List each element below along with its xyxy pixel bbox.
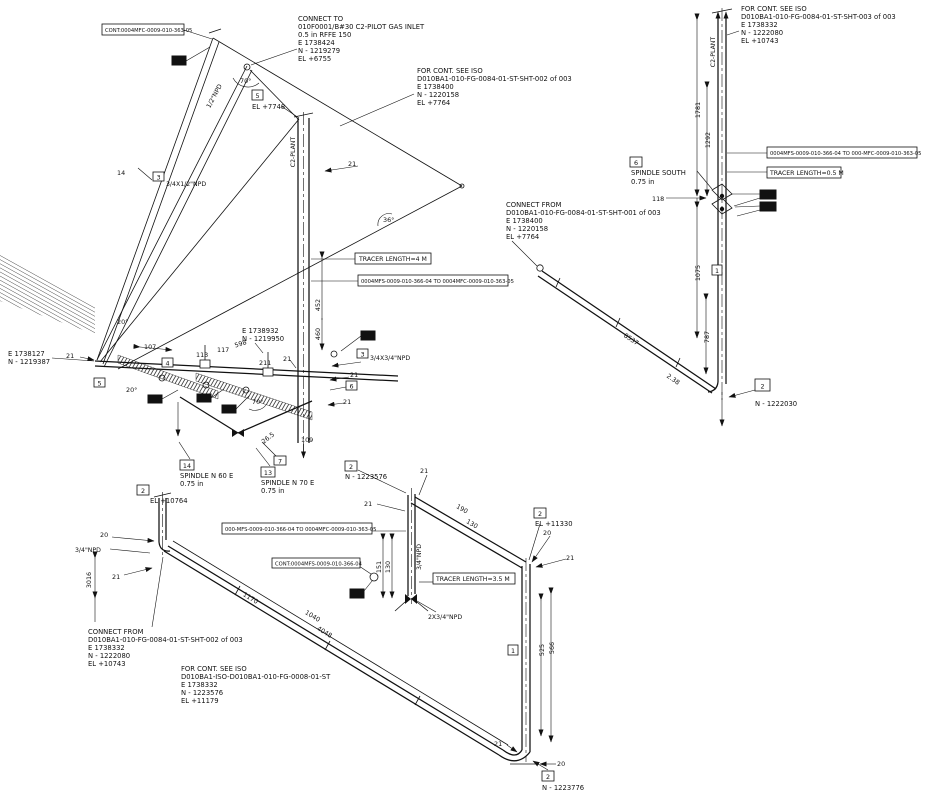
spindle-n60e-l1: SPINDLE N 60 E bbox=[180, 472, 233, 480]
ref-5b-label: 5 bbox=[97, 380, 101, 388]
cf002-line3: E 1738332 bbox=[88, 644, 125, 652]
connect-to-line5: N - 1219279 bbox=[298, 47, 340, 55]
fc002-line4: N - 1220158 bbox=[417, 91, 459, 99]
coord-left-block: E 1738127 N - 1219387 bbox=[8, 350, 50, 366]
dim-21-loop3: 21 bbox=[566, 554, 574, 562]
fciso-line3: E 1738332 bbox=[181, 681, 218, 689]
cf002-line4: N - 1222080 bbox=[88, 652, 130, 660]
paper-background bbox=[0, 0, 927, 796]
cf001-line1: CONNECT FROM bbox=[506, 201, 562, 209]
ref-1b-label: 1 bbox=[511, 647, 515, 655]
dim-21-bl: 21 bbox=[112, 573, 120, 581]
fc003-line3: E 1738332 bbox=[741, 21, 778, 29]
ref-6-label: 6 bbox=[634, 159, 638, 167]
line-name-right: C2-PLANT bbox=[710, 37, 717, 68]
fc002-line1: FOR CONT. SEE ISO bbox=[417, 67, 483, 75]
dim-3016: 3016 bbox=[85, 572, 93, 588]
fc003-line1: FOR CONT. SEE ISO bbox=[741, 5, 807, 13]
ref-2c-label: 2 bbox=[349, 463, 353, 471]
spindle-n70e-l2: 0.75 in bbox=[261, 487, 285, 495]
cf001-line4: N - 1220158 bbox=[506, 225, 548, 233]
coord-mid-block: E 1738932 N - 1219950 bbox=[242, 327, 284, 343]
n-1223576-label: N - 1223576 bbox=[345, 473, 387, 481]
dim-452: 452 bbox=[314, 299, 322, 311]
cf002-line5: EL +10743 bbox=[88, 660, 126, 668]
coord-left-n: N - 1219387 bbox=[8, 358, 50, 366]
npd-34-label: 3/4"NPD bbox=[75, 547, 101, 554]
connect-to-line4: E 1738424 bbox=[298, 39, 335, 47]
connect-to-line1: CONNECT TO bbox=[298, 15, 343, 23]
dim-211: 211 bbox=[259, 359, 271, 367]
dim-107: 107 bbox=[144, 343, 156, 351]
dim-21-left: 21 bbox=[66, 352, 74, 360]
angle-36: 36° bbox=[383, 216, 394, 224]
coord-mid-e: E 1738932 bbox=[242, 327, 279, 335]
cf002-line1: CONNECT FROM bbox=[88, 628, 144, 636]
fc003-line4: N - 1222080 bbox=[741, 29, 783, 37]
dim-1781: 1781 bbox=[694, 102, 702, 118]
el-10764-label: EL +10764 bbox=[150, 497, 188, 505]
tracer-4m-label: TRACER LENGTH=4 M bbox=[358, 256, 427, 263]
cf001-line3: E 1738400 bbox=[506, 217, 543, 225]
dim-787: 787 bbox=[703, 331, 711, 343]
dim-109: 109 bbox=[301, 436, 313, 444]
coord-mid-n: N - 1219950 bbox=[242, 335, 284, 343]
ref-13-label: 13 bbox=[264, 469, 272, 477]
connect-to-line2: 010F0001/B#30 C2-PILOT GAS INLET bbox=[298, 23, 425, 31]
dim-113: 113 bbox=[196, 351, 208, 359]
dim-117: 117 bbox=[217, 346, 229, 354]
ref-5-label: 5 bbox=[255, 92, 259, 100]
cf001-line5: EL +7764 bbox=[506, 233, 539, 241]
line-mid-label: 0004MFS-0009-010-366-04 TO 0004MFC-0009-… bbox=[361, 279, 514, 285]
cf001-line2: D010BA1-010-FG-0084-01-ST-SHT-001 of 003 bbox=[506, 209, 661, 217]
cf002-line2: D010BA1-010-FG-0084-01-ST-SHT-002 of 003 bbox=[88, 636, 243, 644]
fc003-line2: D010BA1-010-FG-0084-01-ST-SHT-003 of 003 bbox=[741, 13, 896, 21]
fc003-line5: EL +10743 bbox=[741, 37, 779, 45]
npd-34x12-label: 3/4X1/2"NPD bbox=[166, 181, 206, 188]
dim-118: 118 bbox=[652, 195, 664, 203]
ref-2e-label: 2 bbox=[546, 773, 550, 781]
n-1223776-label: N - 1223776 bbox=[542, 784, 584, 792]
fc002-line3: E 1738400 bbox=[417, 83, 454, 91]
spindle-south-l1: SPINDLE SOUTH bbox=[631, 169, 686, 177]
line-name-central: C2-PLANT bbox=[290, 137, 297, 168]
dim-14: 14 bbox=[117, 169, 125, 177]
fciso-line1: FOR CONT. SEE ISO bbox=[181, 665, 247, 673]
ref-4-label: 4 bbox=[165, 360, 169, 368]
ref-2a-label: 2 bbox=[141, 487, 145, 495]
fciso-line2: D010BA1-ISO-D010BA1-010-FG-0008-01-ST bbox=[181, 673, 331, 681]
loop-flag bbox=[350, 589, 364, 598]
dim-21-loop1: 21 bbox=[420, 467, 428, 475]
dim-20-bl: 20 bbox=[100, 531, 108, 539]
line-right-label: 0004MFS-0009-010-366-04 TO 000-MFC-0009-… bbox=[770, 151, 921, 157]
fc002-line2: D010BA1-010-FG-0084-01-ST-SHT-002 of 003 bbox=[417, 75, 572, 83]
dim-21-mid2: 21 bbox=[343, 398, 351, 406]
dim-21-pipe-top: 21 bbox=[348, 160, 356, 168]
connect-to-line6: EL +6755 bbox=[298, 55, 331, 63]
dim-21-run: 21 bbox=[283, 355, 291, 363]
cont-top-left-label: CONT:0004MFC-0009-010-363-05 bbox=[105, 28, 192, 34]
dim-525: 525 bbox=[538, 644, 546, 656]
dim-1292: 1292 bbox=[704, 132, 712, 148]
dim-21-mid1: 21 bbox=[350, 371, 358, 379]
ref-2b-label: 2 bbox=[538, 510, 542, 518]
dim-151: 151 bbox=[375, 561, 383, 573]
dim-20-br: 20 bbox=[557, 760, 565, 768]
spindle-n70e-l1: SPINDLE N 70 E bbox=[261, 479, 314, 487]
ref-3a-label: 3 bbox=[156, 174, 160, 182]
dim-460: 460 bbox=[314, 328, 322, 340]
angle-70-top: 70° bbox=[240, 77, 251, 85]
tracer-05m-label: TRACER LENGTH=0.5 M bbox=[769, 170, 844, 177]
n-1222030-label: N - 1222030 bbox=[755, 400, 797, 408]
npd-34-loop-label: 3/4"NPD bbox=[416, 544, 423, 570]
dim-566: 566 bbox=[548, 642, 556, 654]
angle-20-a: 20° bbox=[117, 318, 128, 326]
angle-70-mid: 70° bbox=[252, 398, 263, 406]
el-7748-label: EL +7748 bbox=[252, 103, 285, 111]
npd-34x34-label: 3/4X3/4"NPD bbox=[370, 355, 410, 362]
spindle-n60e-l2: 0.75 in bbox=[180, 480, 204, 488]
connect-to-line3: 0.5 in RFFE 150 bbox=[298, 31, 351, 39]
cont-bottom-label: CONT:0004MFS-0009-010-366-04 bbox=[275, 562, 363, 568]
ref-2d-label: 2 bbox=[760, 383, 764, 391]
fciso-line5: EL +11179 bbox=[181, 697, 219, 705]
instrument-flag bbox=[172, 56, 186, 65]
ref-14-label: 14 bbox=[183, 462, 191, 470]
tracer-35m-label: TRACER LENGTH=3.5 M bbox=[435, 576, 510, 583]
dim-21-br: 21 bbox=[494, 740, 502, 748]
dim-20-loop: 20 bbox=[543, 529, 551, 537]
drawing-svg: CONT:0004MFC-0009-010-363-05 TRACER LENG… bbox=[0, 0, 927, 796]
fc002-line5: EL +7764 bbox=[417, 99, 450, 107]
dim-130-vert: 130 bbox=[384, 561, 392, 573]
spindle-south-l2: 0.75 in bbox=[631, 178, 655, 186]
ref-7-label: 7 bbox=[278, 458, 282, 466]
npd-2x34-label: 2X3/4"NPD bbox=[428, 614, 462, 621]
line-bottom-label: 000-MFS-0009-010-366-04 TO 0004MFC-0009-… bbox=[225, 527, 376, 533]
el-11330-label: EL +11330 bbox=[535, 520, 573, 528]
coord-left-e: E 1738127 bbox=[8, 350, 45, 358]
angle-20-b: 20° bbox=[126, 386, 137, 394]
dim-21-loop2: 21 bbox=[364, 500, 372, 508]
ref-6b-label: 6 bbox=[349, 383, 353, 391]
fciso-line4: N - 1223576 bbox=[181, 689, 223, 697]
dim-1075: 1075 bbox=[694, 265, 702, 281]
isometric-piping-drawing: CONT:0004MFC-0009-010-363-05 TRACER LENG… bbox=[0, 0, 927, 796]
ref-3b-label: 3 bbox=[360, 351, 364, 359]
ref-1a-label: 1 bbox=[715, 267, 719, 275]
